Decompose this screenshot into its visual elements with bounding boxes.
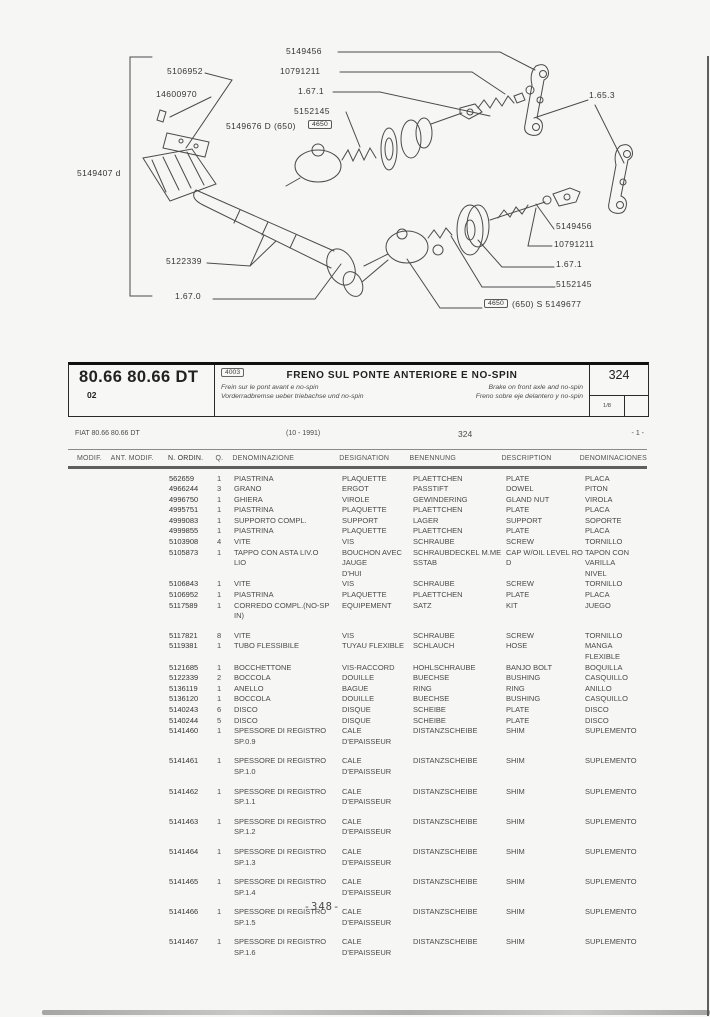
cell-modif (68, 673, 111, 684)
cell-modif (68, 484, 111, 495)
table-row: 51069521PIASTRINAPLAQUETTEPLAETTCHENPLAT… (68, 590, 647, 601)
table-row: 49662443GRANOERGOTPASSTIFTDOWELPITON (68, 484, 647, 495)
cell-quantity: 1 (217, 579, 232, 590)
cell-benennung: DISTANZSCHEIBE (411, 726, 506, 747)
info-model: FIAT 80.66 80.66 DT (75, 430, 140, 437)
cell-denominazione: SPESSORE DI REGISTRO SP.1.6 (232, 937, 338, 958)
table-row: 51414611SPESSORE DI REGISTRO SP.1.0CALE … (68, 756, 647, 777)
cell-description: BANJO BOLT (506, 663, 585, 674)
cell-denominaciones: SUPLEMENTO (585, 726, 647, 747)
cell-denominaciones: JUEGO (585, 601, 647, 622)
cell-quantity: 1 (217, 601, 232, 622)
cell-modif (68, 526, 111, 537)
cell-quantity: 1 (217, 817, 232, 838)
diagram-label-1670: 1.67.0 (175, 291, 201, 301)
cell-description: SHIM (506, 817, 585, 838)
cell-part-number: 5141461 (167, 756, 217, 777)
cell-modif (68, 877, 111, 898)
cell-quantity: 1 (217, 474, 232, 485)
cell-denominaciones: ANILLO (585, 684, 647, 695)
table-row: 51039084VITEVISSCHRAUBESCREWTORNILLO (68, 537, 647, 548)
cell-denominaciones: TORNILLO (585, 631, 647, 642)
cell-quantity: 1 (217, 937, 232, 958)
cell-ant-modif (111, 474, 167, 485)
cell-part-number: 5136120 (167, 694, 217, 705)
cell-denominazione: CORREDO COMPL.(NO-SP IN) (232, 601, 338, 622)
cell-modif (68, 601, 111, 622)
cell-quantity: 8 (217, 631, 232, 642)
cell-denominazione: BOCCOLA (232, 673, 338, 684)
table-row: 51414621SPESSORE DI REGISTRO SP.1.1CALE … (68, 787, 647, 808)
cell-benennung: SATZ (411, 601, 506, 622)
cell-description: CAP W/OIL LEVEL RO D (506, 548, 585, 580)
cell-denominazione: BOCCOLA (232, 694, 338, 705)
table-row: 51193811TUBO FLESSIBILETUYAU FLEXIBLESCH… (68, 641, 647, 662)
cell-denominazione: VITE (232, 579, 338, 590)
cell-ant-modif (111, 705, 167, 716)
diagram-label-1671-right: 1.67.1 (556, 259, 582, 269)
cell-benennung: SCHRAUBDECKEL M.ME SSTAB (411, 548, 506, 580)
cell-denominaciones: SUPLEMENTO (585, 937, 647, 958)
cell-benennung: BUECHSE (411, 694, 506, 705)
cell-denominaciones: SUPLEMENTO (585, 817, 647, 838)
cell-designation: BAGUE (338, 684, 411, 695)
cell-description: SCREW (506, 631, 585, 642)
cell-designation: DISQUE (338, 705, 411, 716)
cell-quantity: 5 (217, 716, 232, 727)
cell-denominazione: SPESSORE DI REGISTRO SP.1.1 (232, 787, 338, 808)
cell-designation: DOUILLE (338, 694, 411, 705)
cell-benennung: PLAETTCHEN (411, 474, 506, 485)
cell-part-number: 562659 (167, 474, 217, 485)
subtitle-fr: Frein sur le pont avant e no-spin (221, 384, 364, 391)
cell-quantity: 1 (217, 505, 232, 516)
info-date: (10 - 1991) (286, 430, 320, 437)
cell-description: PLATE (506, 474, 585, 485)
cell-designation: PLAQUETTE (338, 526, 411, 537)
cell-part-number: 5106952 (167, 590, 217, 601)
cell-designation: CALE D'EPAISSEUR (338, 937, 411, 958)
parts-diagram: 5106952146009705149456107912111.67.15152… (0, 0, 710, 360)
cell-description: SHIM (506, 756, 585, 777)
diagram-label-4650-top: 4650 (308, 120, 332, 129)
cell-ant-modif (111, 716, 167, 727)
cell-denominazione: GHIERA (232, 495, 338, 506)
cell-description: BUSHING (506, 673, 585, 684)
diagram-label-5149456-top: 5149456 (286, 46, 322, 56)
cell-denominazione: TAPPO CON ASTA LIV.O LIO (232, 548, 338, 580)
cell-denominazione: SPESSORE DI REGISTRO SP.1.0 (232, 756, 338, 777)
cell-designation: CALE D'EPAISSEUR (338, 787, 411, 808)
cell-denominaciones: SUPLEMENTO (585, 847, 647, 868)
cell-part-number: 5141465 (167, 877, 217, 898)
cell-ant-modif (111, 505, 167, 516)
cell-quantity: 4 (217, 537, 232, 548)
cell-ant-modif (111, 726, 167, 747)
cell-denominazione: PIASTRINA (232, 526, 338, 537)
cell-designation: PLAQUETTE (338, 590, 411, 601)
title-cell: 4003 FRENO SUL PONTE ANTERIORE E NO-SPIN… (215, 365, 590, 416)
cell-quantity: 1 (217, 663, 232, 674)
cell-ant-modif (111, 787, 167, 808)
diagram-label-4650-right: 4650 (484, 299, 508, 308)
cell-denominazione: SPESSORE DI REGISTRO SP.1.3 (232, 847, 338, 868)
cell-ant-modif (111, 663, 167, 674)
diagram-line-art (0, 0, 710, 360)
cell-ant-modif (111, 847, 167, 868)
table-row: 51402445DISCODISQUESCHEIBEPLATEDISCO (68, 716, 647, 727)
diagram-label-5152145-top: 5152145 (294, 106, 330, 116)
sheet-number: 1/8 (590, 396, 625, 416)
cell-modif (68, 590, 111, 601)
cell-designation: BOUCHON AVEC JAUGE D'HUI (338, 548, 411, 580)
cell-designation: DISQUE (338, 716, 411, 727)
cell-quantity: 1 (217, 590, 232, 601)
cell-designation: TUYAU FLEXIBLE (338, 641, 411, 662)
parts-table: MODIF.ANT. MODIF.N. ORDIN.Q.DENOMINAZION… (68, 449, 647, 968)
cell-denominaciones: PLACA (585, 505, 647, 516)
cell-benennung: DISTANZSCHEIBE (411, 877, 506, 898)
cell-part-number: 5105873 (167, 548, 217, 580)
column-header-n: N. ORDIN. (166, 455, 215, 462)
cell-modif (68, 537, 111, 548)
column-header-modif: MODIF. (68, 455, 111, 462)
cell-part-number: 5141467 (167, 937, 217, 958)
page-code-cell: 324 1/8 (590, 365, 648, 416)
cell-denominazione: BOCCHETTONE (232, 663, 338, 674)
cell-part-number: 4999083 (167, 516, 217, 527)
cell-designation: CALE D'EPAISSEUR (338, 726, 411, 747)
cell-denominazione: PIASTRINA (232, 505, 338, 516)
cell-quantity: 2 (217, 673, 232, 684)
cell-ant-modif (111, 684, 167, 695)
cell-denominaciones: PLACA (585, 590, 647, 601)
cell-ant-modif (111, 516, 167, 527)
cell-modif (68, 726, 111, 747)
cell-quantity: 1 (217, 787, 232, 808)
cell-benennung: DISTANZSCHEIBE (411, 847, 506, 868)
model-cell: 80.66 80.66 DT 02 (69, 365, 215, 416)
cell-part-number: 5136119 (167, 684, 217, 695)
table-row: 49990831SUPPORTO COMPL.SUPPORTLAGERSUPPO… (68, 516, 647, 527)
cell-benennung: PLAETTCHEN (411, 505, 506, 516)
table-row: 49957511PIASTRINAPLAQUETTEPLAETTCHENPLAT… (68, 505, 647, 516)
cell-designation: CALE D'EPAISSEUR (338, 817, 411, 838)
cell-designation: ERGOT (338, 484, 411, 495)
table-row: 51058731TAPPO CON ASTA LIV.O LIOBOUCHON … (68, 548, 647, 580)
cell-ant-modif (111, 641, 167, 662)
cell-designation: EQUIPEMENT (338, 601, 411, 622)
cell-benennung: RING (411, 684, 506, 695)
cell-ant-modif (111, 548, 167, 580)
table-row: 49998551PIASTRINAPLAQUETTEPLAETTCHENPLAT… (68, 526, 647, 537)
cell-designation: CALE D'EPAISSEUR (338, 847, 411, 868)
cell-modif (68, 631, 111, 642)
table-row: 51414671SPESSORE DI REGISTRO SP.1.6CALE … (68, 937, 647, 958)
cell-designation: SUPPORT (338, 516, 411, 527)
cell-quantity: 1 (217, 516, 232, 527)
model-variant: 02 (87, 390, 210, 400)
cell-part-number: 4996750 (167, 495, 217, 506)
diagram-label-1671-top: 1.67.1 (298, 86, 324, 96)
cell-denominaciones: CASQUILLO (585, 673, 647, 684)
cell-part-number: 5141464 (167, 847, 217, 868)
table-row: 51178218VITEVISSCHRAUBESCREWTORNILLO (68, 631, 647, 642)
cell-denominaciones: MANGA FLEXIBLE (585, 641, 647, 662)
group-code-badge: 4003 (221, 368, 244, 377)
cell-part-number: 5103908 (167, 537, 217, 548)
cell-part-number: 5141462 (167, 787, 217, 808)
cell-modif (68, 756, 111, 777)
cell-denominaciones: SUPLEMENTO (585, 787, 647, 808)
cell-benennung: GEWINDERING (411, 495, 506, 506)
cell-ant-modif (111, 631, 167, 642)
cell-denominazione: SPESSORE DI REGISTRO SP.1.2 (232, 817, 338, 838)
cell-benennung: SCHEIBE (411, 716, 506, 727)
cell-modif (68, 579, 111, 590)
cell-designation: VIROLE (338, 495, 411, 506)
cell-denominaciones: TORNILLO (585, 537, 647, 548)
cell-denominaciones: TAPON CON VARILLA NIVEL (585, 548, 647, 580)
cell-description: BUSHING (506, 694, 585, 705)
cell-modif (68, 694, 111, 705)
footer-page-number: -348- (0, 901, 644, 913)
cell-ant-modif (111, 937, 167, 958)
cell-ant-modif (111, 590, 167, 601)
cell-denominazione: DISCO (232, 716, 338, 727)
cell-description: DOWEL (506, 484, 585, 495)
diagram-label-10791211-right: 10791211 (554, 239, 594, 249)
cell-part-number: 5140244 (167, 716, 217, 727)
cell-denominaciones: PLACA (585, 474, 647, 485)
cell-ant-modif (111, 537, 167, 548)
cell-denominazione: TUBO FLESSIBILE (232, 641, 338, 662)
cell-ant-modif (111, 673, 167, 684)
table-row: 51414651SPESSORE DI REGISTRO SP.1.4CALE … (68, 877, 647, 898)
cell-denominazione: VITE (232, 631, 338, 642)
cell-denominaciones: DISCO (585, 716, 647, 727)
cell-description: PLATE (506, 590, 585, 601)
cell-part-number: 5119381 (167, 641, 217, 662)
cell-benennung: HOHLSCHRAUBE (411, 663, 506, 674)
cell-modif (68, 495, 111, 506)
cell-benennung: SCHRAUBE (411, 579, 506, 590)
cell-denominazione: GRANO (232, 484, 338, 495)
table-row: 49967501GHIERAVIROLEGEWINDERINGGLAND NUT… (68, 495, 647, 506)
cell-benennung: LAGER (411, 516, 506, 527)
cell-denominazione: VITE (232, 537, 338, 548)
column-header-de: BENENNUNG (407, 455, 501, 462)
cell-description: SCREW (506, 537, 585, 548)
subtitle-de: Vorderradbremse ueber triebachse und no-… (221, 393, 364, 400)
column-header-es: DENOMINACIONES (580, 455, 647, 462)
cell-description: PLATE (506, 705, 585, 716)
table-row: 51223392BOCCOLADOUILLEBUECHSEBUSHINGCASQ… (68, 673, 647, 684)
table-row: 51414601SPESSORE DI REGISTRO SP.0.9CALE … (68, 726, 647, 747)
cell-quantity: 1 (217, 756, 232, 777)
info-page-marker: - 1 - (632, 430, 644, 437)
diagram-label-5149407: 5149407 d (77, 168, 121, 178)
cell-denominaciones: DISCO (585, 705, 647, 716)
cell-denominaciones: PLACA (585, 526, 647, 537)
section-title: FRENO SUL PONTE ANTERIORE E NO-SPIN (221, 370, 583, 381)
cell-quantity: 1 (217, 694, 232, 705)
cell-modif (68, 663, 111, 674)
cell-part-number: 4995751 (167, 505, 217, 516)
cell-benennung: PASSTIFT (411, 484, 506, 495)
cell-modif (68, 847, 111, 868)
cell-ant-modif (111, 495, 167, 506)
cell-denominaciones: PITON (585, 484, 647, 495)
cell-denominazione: SPESSORE DI REGISTRO SP.0.9 (232, 726, 338, 747)
table-body: 5626591PIASTRINAPLAQUETTEPLAETTCHENPLATE… (68, 474, 647, 959)
cell-modif (68, 684, 111, 695)
cell-denominaciones: VIROLA (585, 495, 647, 506)
cell-description: PLATE (506, 526, 585, 537)
cell-modif (68, 716, 111, 727)
cell-part-number: 5117589 (167, 601, 217, 622)
cell-description: SHIM (506, 787, 585, 808)
cell-ant-modif (111, 526, 167, 537)
cell-part-number: 5122339 (167, 673, 217, 684)
cell-part-number: 5121685 (167, 663, 217, 674)
cell-benennung: SCHEIBE (411, 705, 506, 716)
cell-ant-modif (111, 601, 167, 622)
cell-description: HOSE (506, 641, 585, 662)
column-header-fr: DESIGNATION (335, 455, 407, 462)
table-row: 51361201BOCCOLADOUILLEBUECHSEBUSHINGCASQ… (68, 694, 647, 705)
diagram-label-5149676: 5149676 D (650) (226, 121, 296, 131)
scan-edge-artifact-right (707, 56, 710, 1016)
cell-part-number: 5117821 (167, 631, 217, 642)
cell-benennung: PLAETTCHEN (411, 590, 506, 601)
subtitle-en: Brake on front axle and no-spin (476, 384, 583, 391)
cell-quantity: 1 (217, 877, 232, 898)
diagram-label-10791211-top: 10791211 (280, 66, 320, 76)
cell-ant-modif (111, 694, 167, 705)
cell-denominaciones: CASQUILLO (585, 694, 647, 705)
cell-denominaciones: TORNILLO (585, 579, 647, 590)
table-row: 51402436DISCODISQUESCHEIBEPLATEDISCO (68, 705, 647, 716)
cell-designation: VIS (338, 579, 411, 590)
cell-benennung: SCHRAUBE (411, 631, 506, 642)
table-row: 51216851BOCCHETTONEVIS-RACCORDHOHLSCHRAU… (68, 663, 647, 674)
cell-denominazione: SPESSORE DI REGISTRO SP.1.4 (232, 877, 338, 898)
catalog-page: 5106952146009705149456107912111.67.15152… (0, 0, 710, 1017)
cell-description: GLAND NUT (506, 495, 585, 506)
cell-quantity: 6 (217, 705, 232, 716)
table-row: 51175891CORREDO COMPL.(NO-SP IN)EQUIPEME… (68, 601, 647, 622)
cell-quantity: 1 (217, 847, 232, 868)
subtitle-es: Freno sobre eje delantero y no-spin (476, 393, 583, 400)
cell-denominaciones: BOQUILLA (585, 663, 647, 674)
table-row: 51361191ANELLOBAGUERINGRINGANILLO (68, 684, 647, 695)
cell-denominazione: PIASTRINA (232, 474, 338, 485)
cell-description: SCREW (506, 579, 585, 590)
cell-ant-modif (111, 877, 167, 898)
cell-designation: CALE D'EPAISSEUR (338, 877, 411, 898)
cell-designation: VIS (338, 537, 411, 548)
table-row: 51068431VITEVISSCHRAUBESCREWTORNILLO (68, 579, 647, 590)
cell-modif (68, 787, 111, 808)
cell-quantity: 1 (217, 526, 232, 537)
cell-description: KIT (506, 601, 585, 622)
section-header: 80.66 80.66 DT 02 4003 FRENO SUL PONTE A… (68, 362, 649, 417)
info-code: 324 (458, 429, 472, 439)
diagram-label-5152145-right: 5152145 (556, 279, 592, 289)
cell-modif (68, 474, 111, 485)
cell-modif (68, 705, 111, 716)
diagram-label-5149456-right: 5149456 (556, 221, 592, 231)
cell-part-number: 4966244 (167, 484, 217, 495)
cell-designation: VIS-RACCORD (338, 663, 411, 674)
cell-ant-modif (111, 756, 167, 777)
cell-denominazione: SUPPORTO COMPL. (232, 516, 338, 527)
column-header-it: DENOMINAZIONE (230, 455, 335, 462)
cell-designation: DOUILLE (338, 673, 411, 684)
cell-ant-modif (111, 817, 167, 838)
cell-ant-modif (111, 579, 167, 590)
cell-description: SHIM (506, 726, 585, 747)
cell-part-number: 5140243 (167, 705, 217, 716)
cell-description: PLATE (506, 716, 585, 727)
cell-modif (68, 641, 111, 662)
diagram-label-5106952: 5106952 (167, 66, 203, 76)
cell-modif (68, 505, 111, 516)
cell-denominaciones: SUPLEMENTO (585, 756, 647, 777)
header-divider (68, 466, 647, 469)
model-number: 80.66 80.66 DT (79, 368, 210, 387)
diagram-label-1653: 1.65.3 (589, 90, 615, 100)
cell-denominaciones: SUPLEMENTO (585, 877, 647, 898)
column-header-q: Q. (216, 455, 231, 462)
cell-modif (68, 937, 111, 958)
cell-benennung: DISTANZSCHEIBE (411, 787, 506, 808)
cell-benennung: BUECHSE (411, 673, 506, 684)
cell-benennung: DISTANZSCHEIBE (411, 937, 506, 958)
column-header-row: MODIF.ANT. MODIF.N. ORDIN.Q.DENOMINAZION… (68, 449, 647, 466)
column-header-ant: ANT. MODIF. (111, 455, 166, 462)
diagram-label-5149677: (650) S 5149677 (512, 299, 581, 309)
page-code: 324 (590, 365, 648, 395)
cell-denominazione: PIASTRINA (232, 590, 338, 601)
cell-quantity: 1 (217, 495, 232, 506)
cell-denominazione: DISCO (232, 705, 338, 716)
cell-quantity: 1 (217, 641, 232, 662)
cell-benennung: DISTANZSCHEIBE (411, 756, 506, 777)
cell-ant-modif (111, 484, 167, 495)
cell-modif (68, 548, 111, 580)
column-header-en: DESCRIPTION (501, 455, 579, 462)
cell-description: SUPPORT (506, 516, 585, 527)
cell-part-number: 5141463 (167, 817, 217, 838)
cell-denominazione: ANELLO (232, 684, 338, 695)
cell-designation: PLAQUETTE (338, 474, 411, 485)
cell-designation: CALE D'EPAISSEUR (338, 756, 411, 777)
cell-description: RING (506, 684, 585, 695)
cell-benennung: SCHRAUBE (411, 537, 506, 548)
cell-quantity: 1 (217, 684, 232, 695)
cell-quantity: 1 (217, 726, 232, 747)
cell-description: SHIM (506, 847, 585, 868)
cell-quantity: 1 (217, 548, 232, 580)
cell-benennung: DISTANZSCHEIBE (411, 817, 506, 838)
cell-modif (68, 817, 111, 838)
diagram-label-5122339: 5122339 (166, 256, 202, 266)
cell-part-number: 5106843 (167, 579, 217, 590)
cell-description: PLATE (506, 505, 585, 516)
cell-part-number: 4999855 (167, 526, 217, 537)
